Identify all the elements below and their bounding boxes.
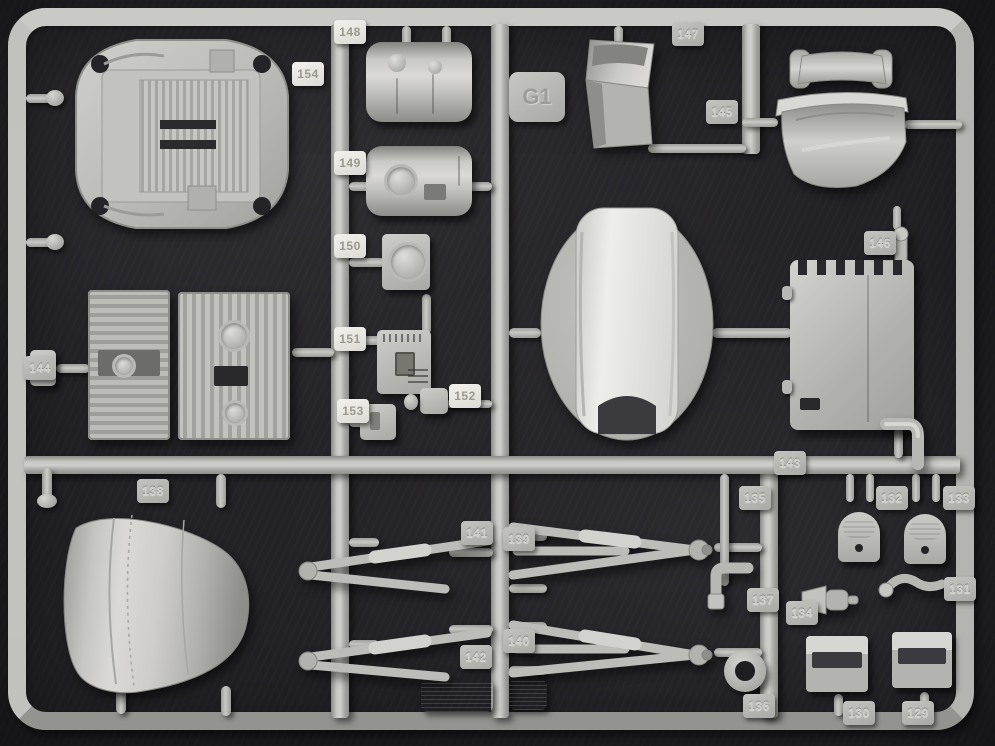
part-fuel-tank-149 [366,146,472,216]
part-number-tag-140: 140 [503,629,535,653]
runner [349,258,385,267]
part-number-tag-149: 149 [334,151,366,175]
part-intake-scoop-145 [772,46,912,196]
mold-marking-tab-small [509,680,547,710]
runner [846,474,854,502]
runner [292,348,334,357]
runner [866,474,874,502]
part-number-tag-138: 138 [137,479,169,503]
part-seat-bulkhead-147 [578,36,666,154]
part-number-tag-134: 134 [786,601,818,625]
part-bent-rod-131 [878,566,948,606]
part-number-tag-132: 132 [876,486,908,510]
part-box-hinge-nub [782,380,792,394]
sprue-rail-vertical-topright [742,24,760,154]
part-console-panel-right [178,292,290,440]
part-engine-cowling-138 [56,502,261,694]
part-elbow-pipe [874,414,930,474]
part-number-tag-151: 151 [334,327,366,351]
runner-bulb [46,90,64,106]
part-number-tag-154: 154 [292,62,324,86]
part-number-tag-137: 137 [747,588,779,612]
part-number-tag-143: 143 [774,451,806,475]
part-fuselage-saddle-shell [538,202,716,444]
mold-marking-tab [421,680,493,712]
part-open-box-129 [892,632,952,688]
part-clamp-ring-136 [724,650,766,692]
part-number-tag-136: 136 [743,694,775,718]
part-number-tag-139: 139 [503,527,535,551]
part-console-panel-left [88,290,170,440]
runner [932,474,940,502]
part-small-knob [404,394,418,410]
part-box-hinge-nub [782,286,792,300]
part-number-tag-130: 130 [843,701,875,725]
part-number-tag-135: 135 [739,486,771,510]
part-number-tag-133: 133 [943,486,975,510]
runner [422,294,431,334]
sprue-gate-tab: G1 [509,72,565,122]
part-number-tag-146: 146 [864,231,896,255]
runner-bulb [37,494,57,508]
part-cockpit-tub [64,28,296,240]
runner-bulb [46,234,64,250]
runner [509,328,541,338]
part-small-fitting-152 [420,388,448,414]
part-number-tag-153: 153 [337,399,369,423]
part-number-tag-131: 131 [944,577,976,601]
part-number-tag-129: 129 [902,701,934,725]
part-avionics-box-151 [377,330,431,394]
sprue-photo: G1 [0,0,995,746]
part-number-tag-142: 142 [460,645,492,669]
part-cylinder-housing-150 [382,234,430,290]
part-number-tag-141: 141 [461,521,493,545]
runner [712,328,792,338]
part-number-tag-145: 145 [706,100,738,124]
part-number-tag-150: 150 [334,234,366,258]
runner [56,364,90,373]
part-number-tag-148: 148 [334,20,366,44]
part-gear-door-132 [838,512,880,562]
runner [912,474,920,502]
part-box-slot [800,398,820,410]
part-fuel-tank-148 [366,42,472,122]
part-number-tag-147: 147 [672,22,704,46]
part-number-tag-144: 144 [24,356,56,380]
part-open-box-130 [806,636,868,692]
runner [904,120,962,129]
part-number-tag-152: 152 [449,384,481,408]
runner [834,694,843,716]
sprue-rail-horizontal-middle [24,456,960,474]
part-gear-door-133 [904,514,946,564]
